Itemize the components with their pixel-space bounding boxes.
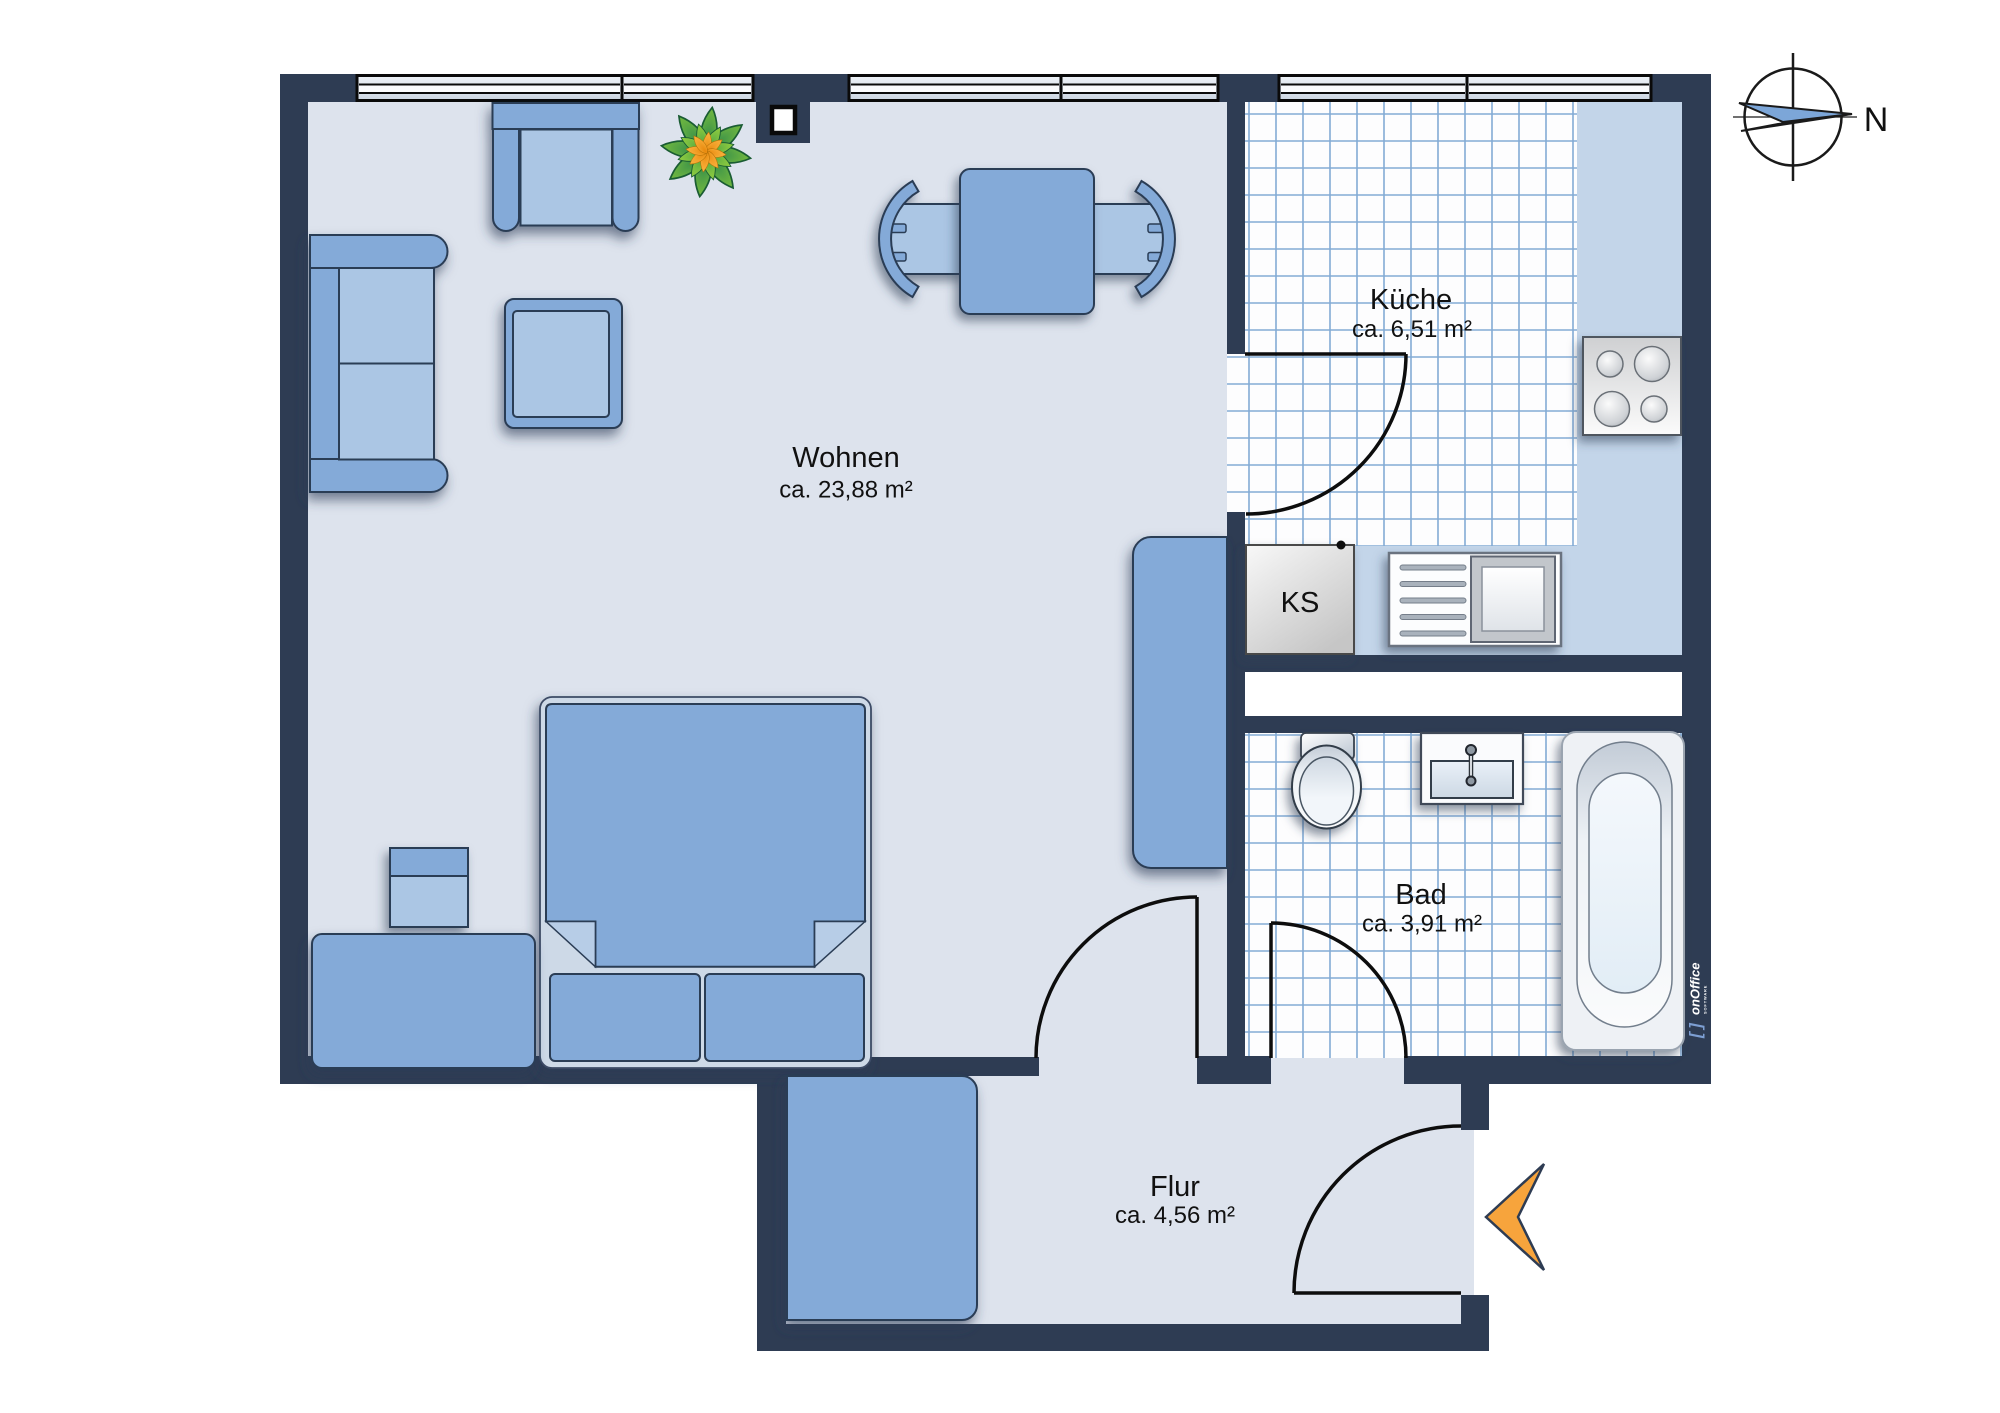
svg-text:onOffice: onOffice: [1688, 963, 1703, 1016]
svg-text:ca. 3,91 m²: ca. 3,91 m²: [1362, 911, 1482, 938]
svg-text:Wohnen: Wohnen: [792, 442, 900, 474]
svg-text:Bad: Bad: [1395, 879, 1447, 911]
svg-text:ca. 6,51 m²: ca. 6,51 m²: [1352, 316, 1472, 343]
svg-text:[ ]: [ ]: [1686, 1022, 1705, 1039]
svg-text:Küche: Küche: [1370, 284, 1452, 316]
svg-text:SOFTWARE: SOFTWARE: [1703, 985, 1708, 1014]
svg-text:KS: KS: [1281, 587, 1320, 619]
svg-text:N: N: [1864, 101, 1889, 139]
svg-text:ca. 4,56 m²: ca. 4,56 m²: [1115, 1202, 1235, 1229]
svg-text:ca. 23,88 m²: ca. 23,88 m²: [779, 477, 912, 504]
svg-text:Flur: Flur: [1150, 1171, 1200, 1203]
